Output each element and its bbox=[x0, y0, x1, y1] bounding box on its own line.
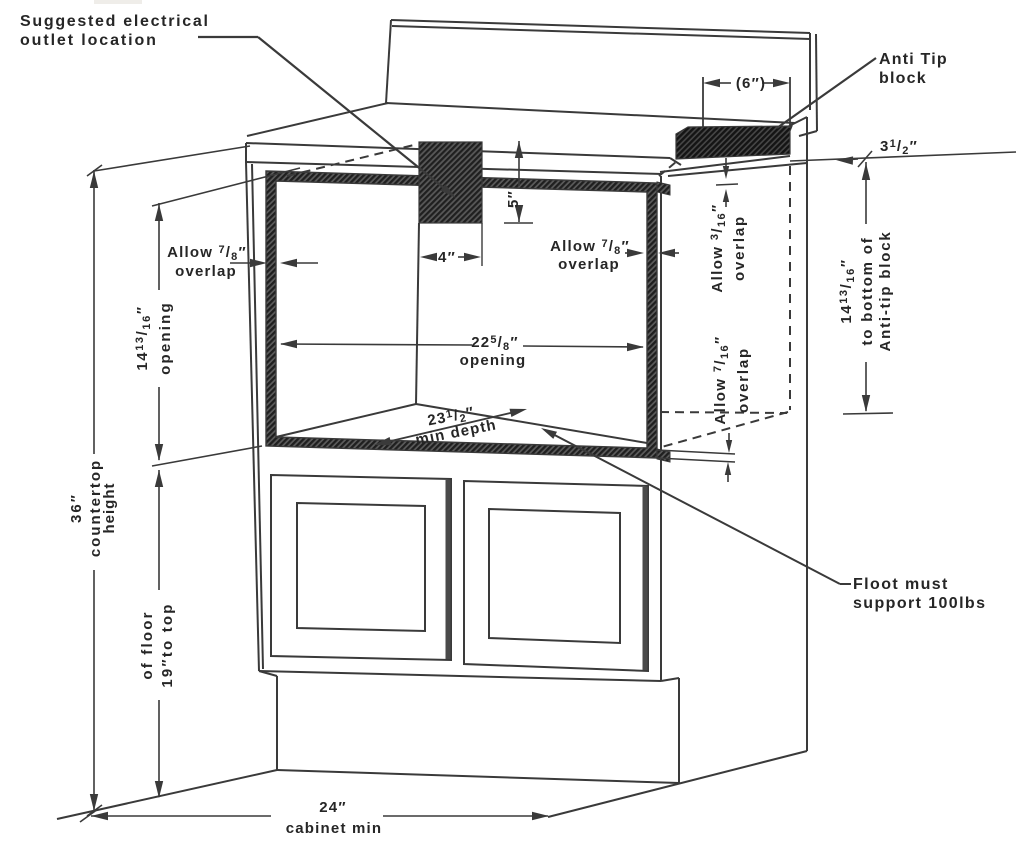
svg-text:4″: 4″ bbox=[438, 249, 456, 266]
svg-text:opening: opening bbox=[460, 352, 527, 369]
svg-text:5″: 5″ bbox=[505, 190, 522, 208]
svg-text:Anti Tip: Anti Tip bbox=[879, 51, 948, 68]
svg-text:block: block bbox=[879, 70, 927, 87]
svg-text:36″: 36″ bbox=[68, 493, 85, 523]
svg-text:opening: opening bbox=[157, 301, 174, 375]
svg-text:support 100lbs: support 100lbs bbox=[853, 595, 986, 612]
svg-text:overlap: overlap bbox=[735, 347, 752, 413]
svg-text:Floot must: Floot must bbox=[853, 576, 949, 593]
svg-text:overlap: overlap bbox=[731, 215, 748, 281]
svg-text:overlap: overlap bbox=[175, 263, 237, 280]
svg-text:height: height bbox=[101, 483, 118, 534]
svg-text:outlet location: outlet location bbox=[20, 32, 158, 49]
svg-text:to bottom of: to bottom of bbox=[859, 236, 876, 345]
svg-text:cabinet min: cabinet min bbox=[286, 820, 383, 837]
svg-text:31/2″: 31/2″ bbox=[880, 138, 918, 157]
svg-text:19″to top: 19″to top bbox=[159, 602, 176, 687]
svg-text:of floor: of floor bbox=[139, 610, 156, 679]
svg-text:24″: 24″ bbox=[319, 799, 346, 816]
svg-text:Anti-tip block: Anti-tip block bbox=[877, 230, 894, 351]
svg-text:Suggested electrical: Suggested electrical bbox=[20, 13, 210, 30]
svg-text:(6″): (6″) bbox=[736, 75, 766, 92]
svg-text:overlap: overlap bbox=[558, 256, 620, 273]
